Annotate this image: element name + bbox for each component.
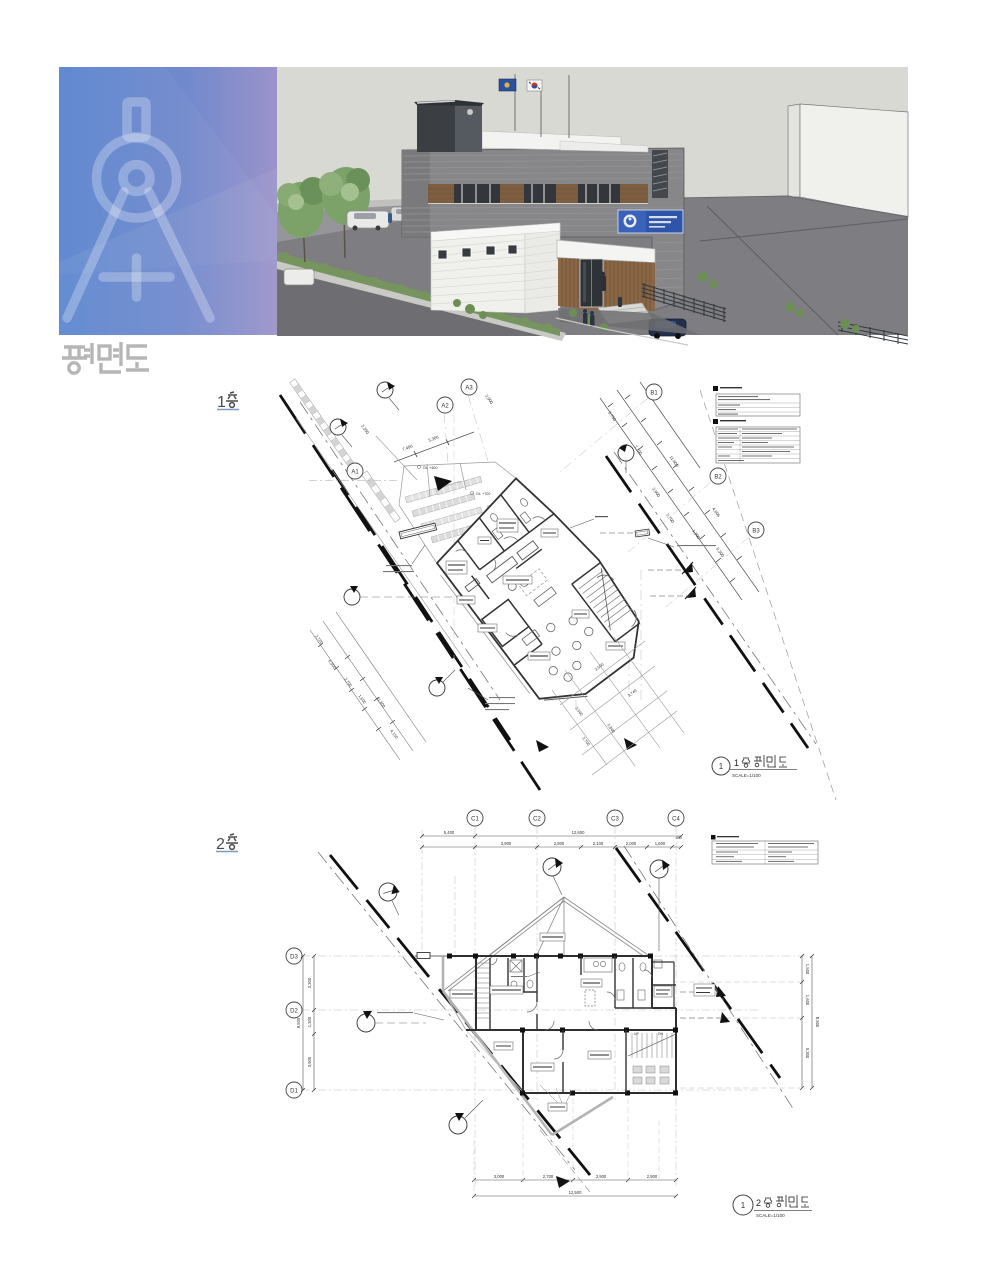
svg-text:7,100: 7,100 [633, 444, 643, 456]
svg-text:7,400: 7,400 [402, 443, 414, 452]
svg-text:5,300: 5,300 [805, 1048, 810, 1059]
svg-text:8,500: 8,500 [815, 1017, 820, 1028]
svg-text:5,400: 5,400 [444, 830, 455, 835]
svg-text:5,300: 5,300 [715, 546, 725, 558]
svg-text:GL +400: GL +400 [423, 466, 438, 470]
svg-text:DN: DN [658, 1032, 663, 1036]
svg-text:4,150: 4,150 [389, 729, 399, 741]
svg-text:D2: D2 [290, 1009, 298, 1015]
svg-text:2,350: 2,350 [360, 423, 370, 435]
svg-text:12,500: 12,500 [569, 1190, 582, 1195]
svg-text:3,740: 3,740 [627, 687, 639, 697]
svg-text:1,600: 1,600 [655, 841, 666, 846]
svg-text:4,605: 4,605 [711, 506, 721, 518]
svg-text:1: 1 [217, 394, 226, 411]
svg-text:2,900: 2,900 [647, 1174, 658, 1179]
svg-text:B1: B1 [650, 391, 658, 397]
svg-text:2,700: 2,700 [665, 512, 675, 524]
svg-text:3,900: 3,900 [596, 1174, 607, 1179]
svg-text:12,600: 12,600 [572, 830, 585, 835]
svg-text:2,000: 2,000 [484, 393, 494, 405]
svg-text:5,300: 5,300 [428, 434, 440, 443]
svg-text:C4: C4 [672, 817, 680, 823]
svg-text:UP: UP [634, 1032, 639, 1036]
svg-text:1,300: 1,300 [307, 1016, 312, 1027]
svg-text:3,300: 3,300 [307, 977, 312, 988]
svg-text:1: 1 [719, 762, 724, 771]
svg-text:1,500: 1,500 [805, 964, 810, 975]
svg-text:2,720: 2,720 [314, 634, 324, 646]
svg-text:3,900: 3,900 [651, 486, 661, 498]
svg-text:1,500: 1,500 [357, 694, 367, 706]
svg-text:GL +700: GL +700 [476, 492, 491, 496]
svg-text:SCALE=1/100: SCALE=1/100 [732, 773, 761, 778]
svg-text:B3: B3 [752, 529, 760, 535]
svg-text:1: 1 [741, 1201, 746, 1210]
svg-text:A1: A1 [351, 470, 359, 476]
svg-text:1,600: 1,600 [805, 995, 810, 1006]
svg-text:2,700: 2,700 [343, 677, 353, 689]
svg-text:2,100: 2,100 [593, 841, 604, 846]
svg-text:3,000: 3,000 [494, 1174, 505, 1179]
svg-text:3,900: 3,900 [501, 841, 512, 846]
svg-text:2,800: 2,800 [554, 841, 565, 846]
svg-text:C2: C2 [533, 817, 541, 823]
svg-text:C1: C1 [471, 817, 479, 823]
svg-text:B2: B2 [714, 475, 722, 481]
svg-text:1: 1 [734, 758, 739, 768]
svg-text:A3: A3 [465, 386, 473, 392]
svg-text:2,700: 2,700 [543, 1174, 554, 1179]
svg-text:600: 600 [676, 836, 682, 840]
svg-text:2: 2 [756, 1198, 761, 1208]
svg-text:SCALE=1/100: SCALE=1/100 [756, 1213, 785, 1218]
svg-text:A2: A2 [441, 404, 449, 410]
svg-text:2: 2 [216, 836, 225, 853]
svg-text:2,560: 2,560 [574, 706, 584, 718]
svg-text:D3: D3 [290, 955, 298, 961]
svg-text:3,900: 3,900 [307, 1056, 312, 1067]
svg-text:2,700: 2,700 [581, 736, 591, 748]
svg-text:C3: C3 [611, 817, 619, 823]
svg-text:D1: D1 [290, 1089, 298, 1095]
svg-text:8,500: 8,500 [296, 1017, 301, 1028]
svg-text:2,000: 2,000 [626, 841, 637, 846]
